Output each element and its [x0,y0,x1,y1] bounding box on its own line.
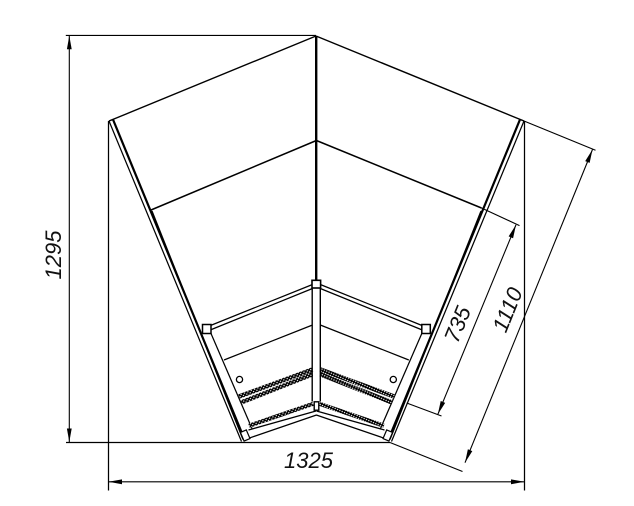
svg-text:735: 735 [439,302,476,346]
svg-text:1110: 1110 [487,283,528,335]
svg-text:1325: 1325 [284,448,334,473]
svg-text:1295: 1295 [41,230,66,280]
